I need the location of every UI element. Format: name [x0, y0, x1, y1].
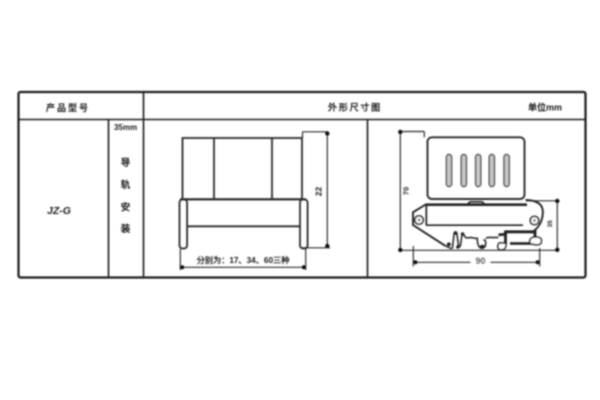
svg-text:22: 22	[314, 187, 324, 197]
svg-text:70: 70	[402, 187, 411, 195]
svg-text:产品型号: 产品型号	[46, 102, 90, 113]
svg-text:导: 导	[121, 158, 131, 169]
svg-text:安: 安	[121, 202, 131, 214]
svg-text:90: 90	[475, 256, 485, 266]
svg-text:分别为：17、34、60三种: 分别为：17、34、60三种	[197, 255, 290, 265]
svg-text:轨: 轨	[121, 179, 131, 191]
svg-text:外形尺寸图: 外形尺寸图	[327, 102, 382, 113]
svg-text:JZ-G: JZ-G	[47, 205, 71, 217]
svg-text:35mm: 35mm	[114, 123, 137, 132]
svg-text:35: 35	[547, 220, 554, 228]
svg-text:装: 装	[120, 223, 131, 235]
svg-text:单位mm: 单位mm	[528, 102, 562, 113]
